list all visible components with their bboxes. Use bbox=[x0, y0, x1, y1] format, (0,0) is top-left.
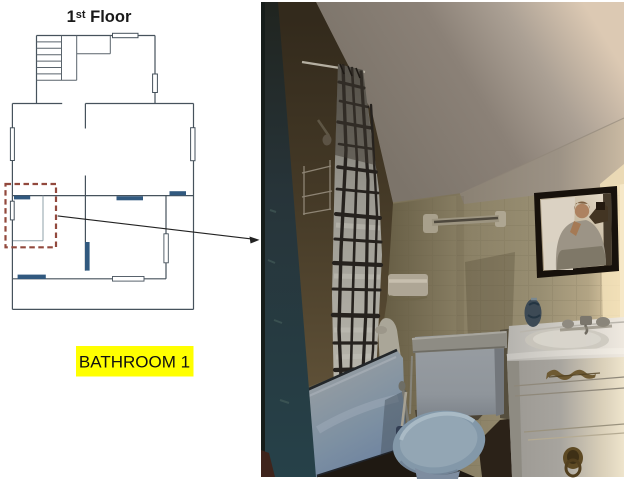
svg-text:BATHROOM 1: BATHROOM 1 bbox=[79, 353, 190, 372]
svg-text:1st Floor: 1st Floor bbox=[67, 8, 132, 26]
